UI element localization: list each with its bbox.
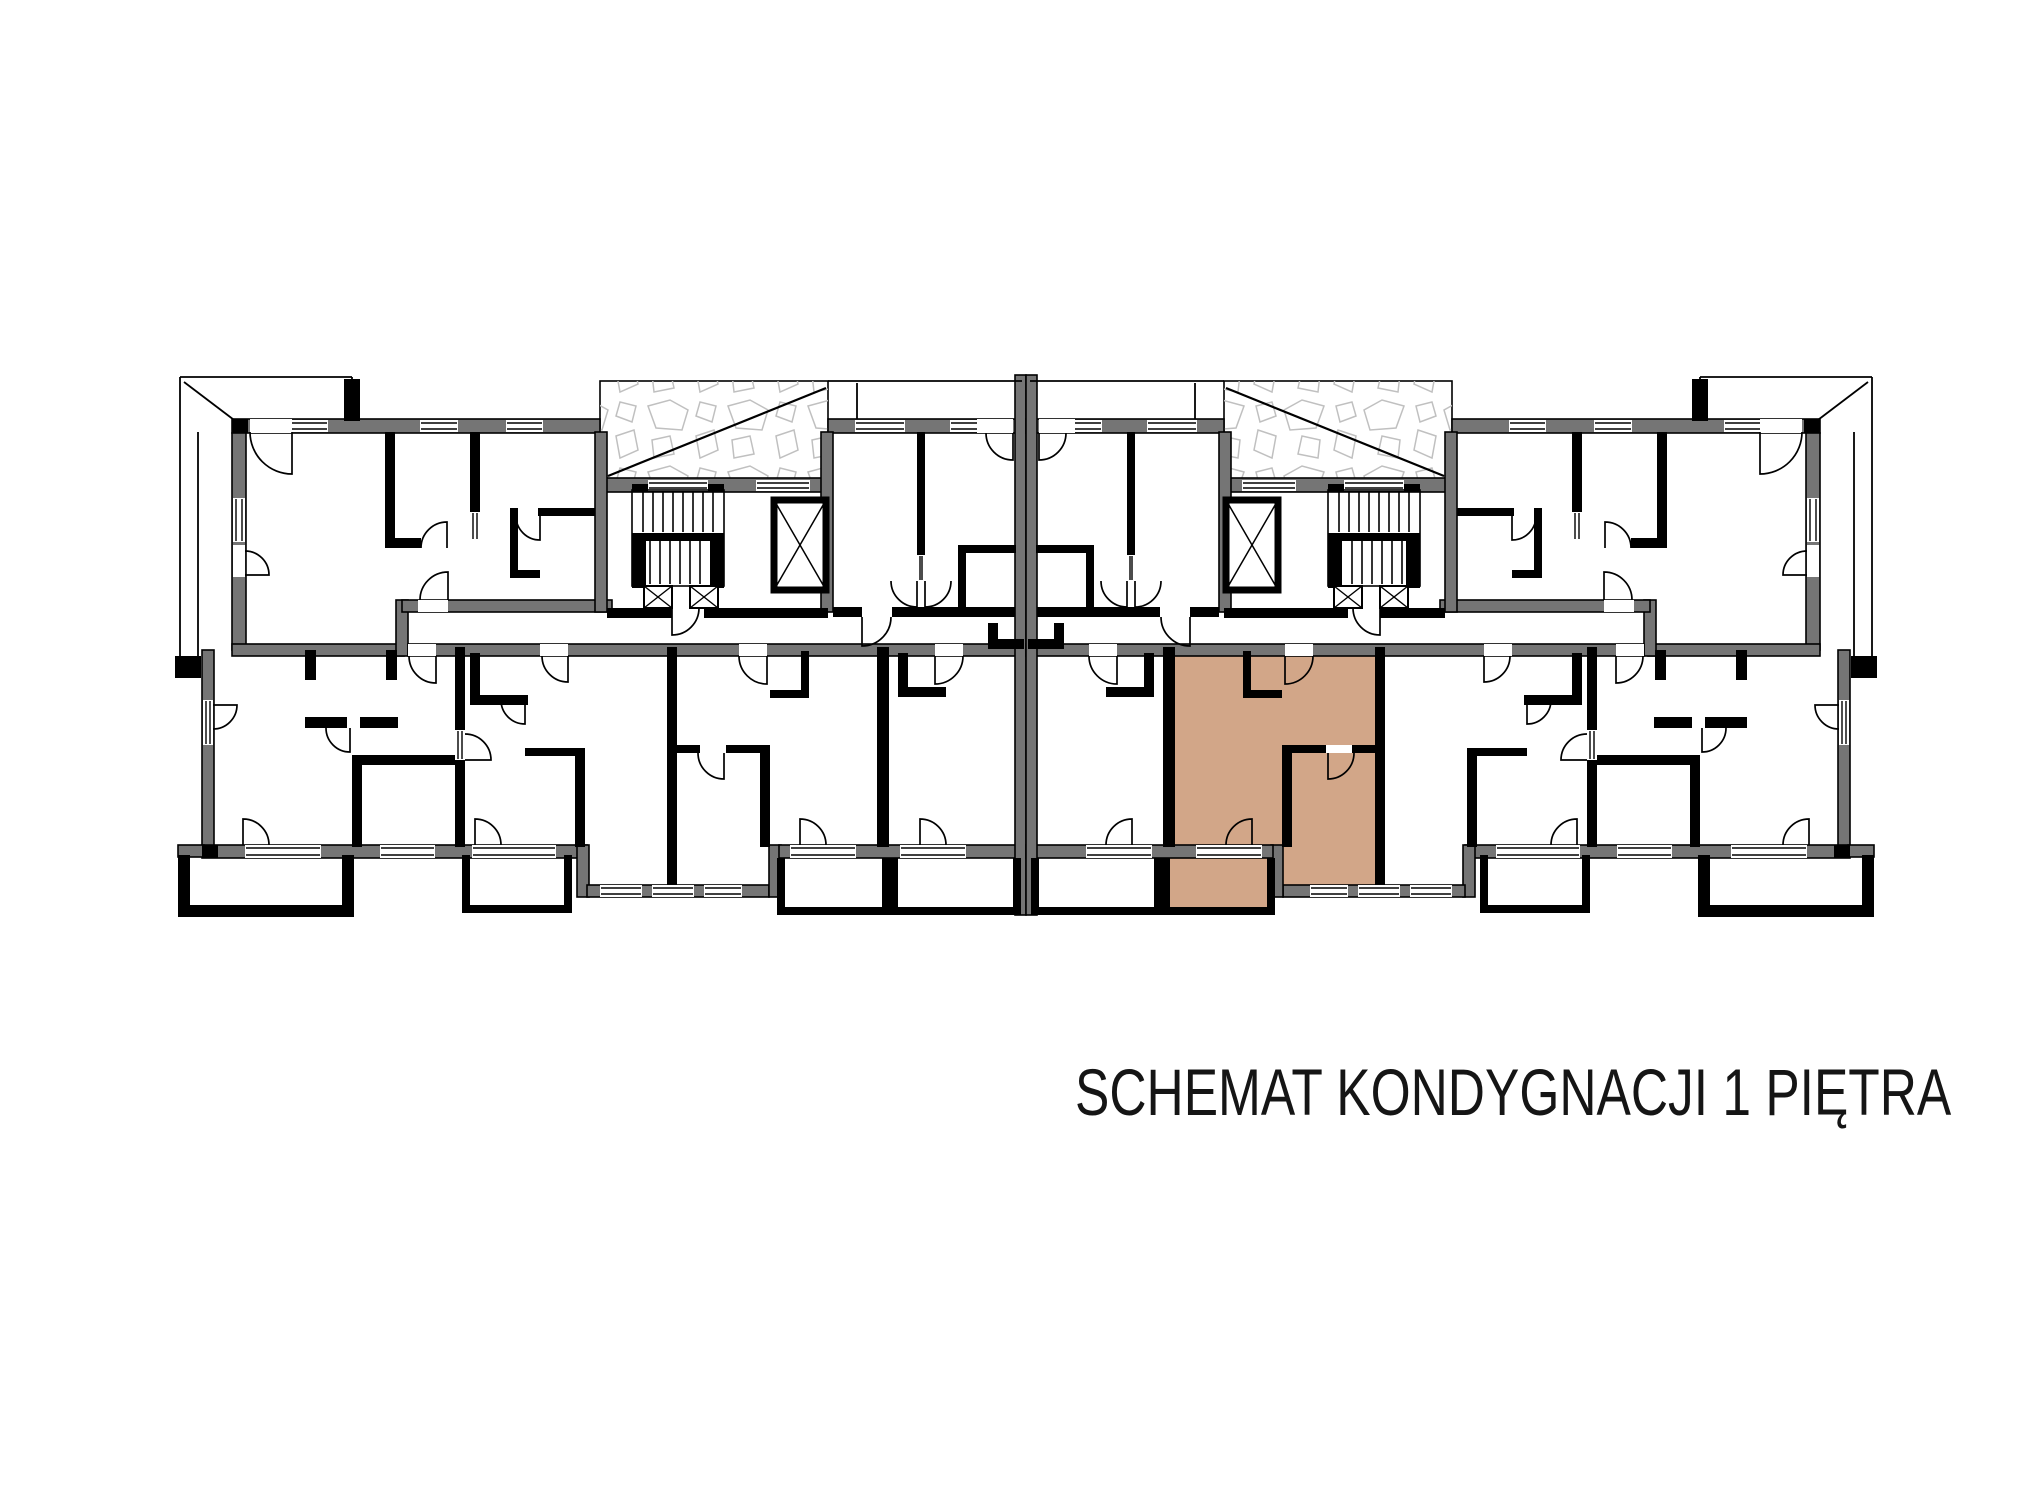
- page: SCHEMAT KONDYGNACJI 1 PIĘTRA: [0, 0, 2031, 1505]
- plan-title: SCHEMAT KONDYGNACJI 1 PIĘTRA: [1075, 1054, 1951, 1130]
- floor-plan: [0, 0, 2031, 1505]
